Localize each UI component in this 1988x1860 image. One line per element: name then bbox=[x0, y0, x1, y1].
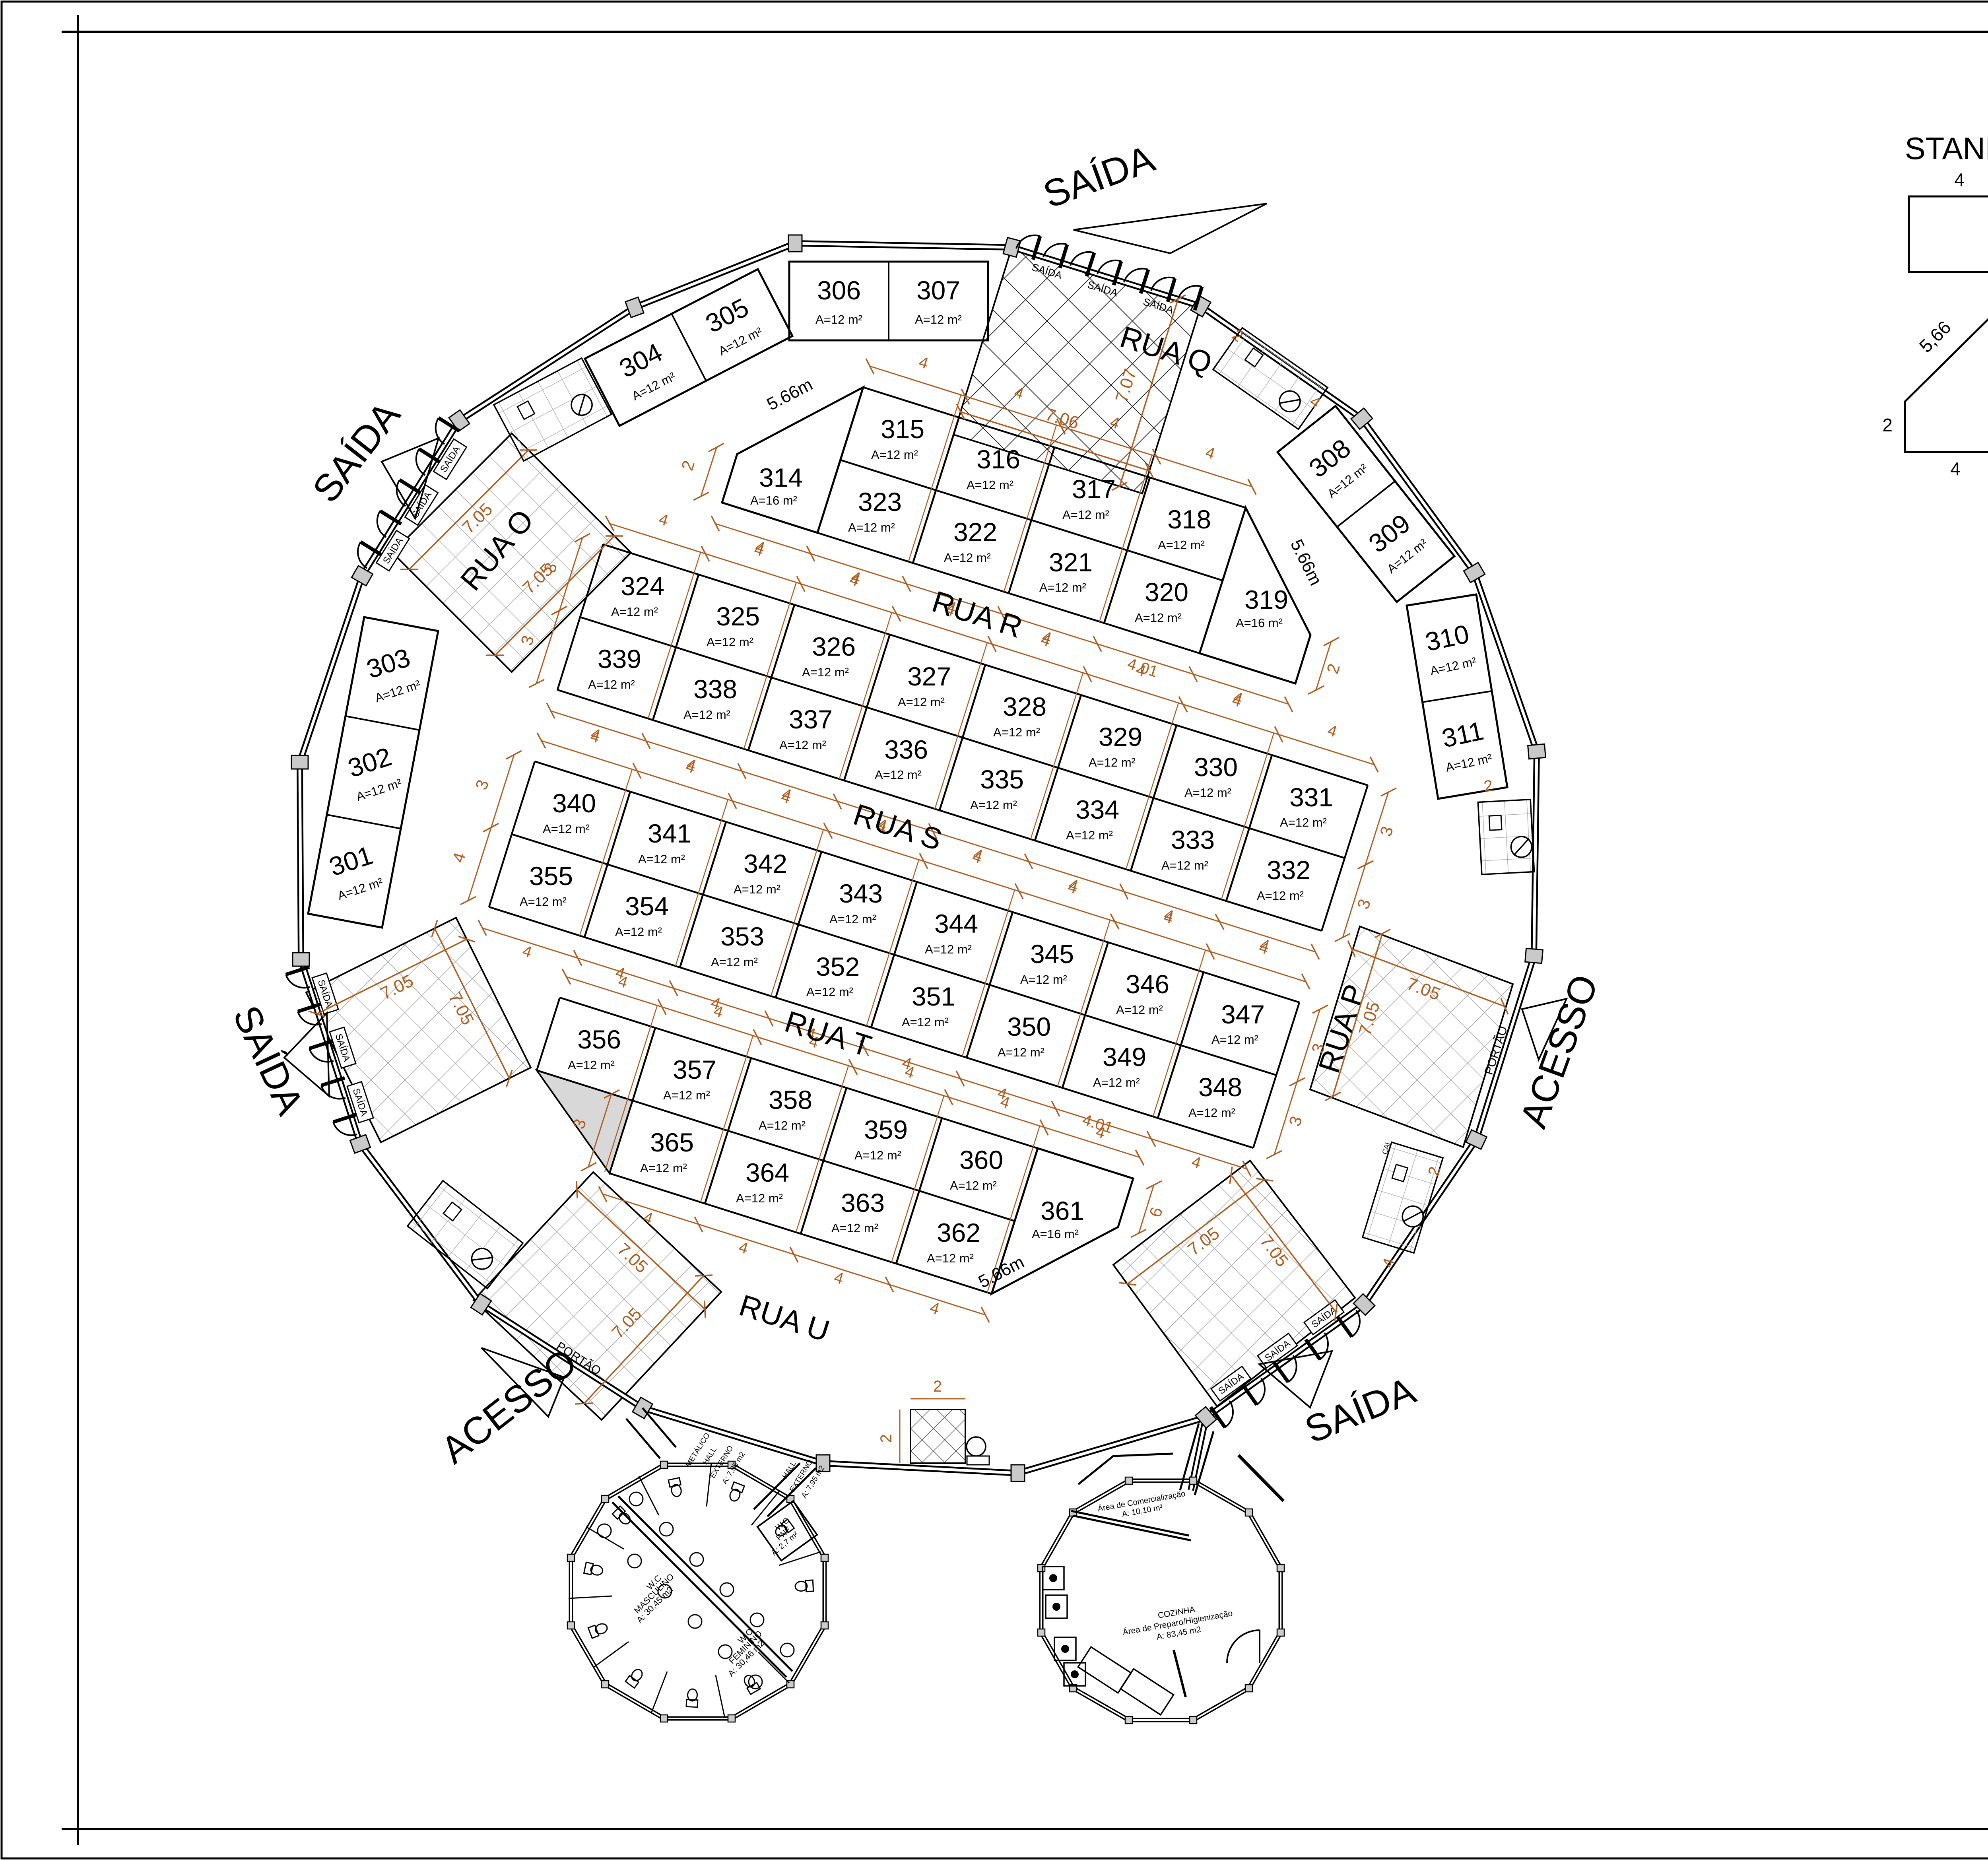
svg-text:335: 335 bbox=[980, 765, 1024, 794]
svg-text:307: 307 bbox=[916, 276, 960, 305]
svg-text:A=12 m²: A=12 m² bbox=[736, 1191, 783, 1205]
svg-text:321: 321 bbox=[1049, 548, 1093, 577]
svg-text:A=12 m²: A=12 m² bbox=[1161, 858, 1208, 872]
svg-text:A=12 m²: A=12 m² bbox=[970, 798, 1017, 812]
svg-text:A=12 m²: A=12 m² bbox=[734, 882, 780, 896]
svg-text:A=12 m²: A=12 m² bbox=[1093, 1076, 1140, 1089]
svg-text:A=12 m²: A=12 m² bbox=[663, 1088, 710, 1102]
svg-text:344: 344 bbox=[934, 909, 978, 938]
svg-text:A=12 m²: A=12 m² bbox=[683, 708, 730, 722]
svg-text:A=12 m²: A=12 m² bbox=[1280, 815, 1327, 829]
svg-text:347: 347 bbox=[1221, 1000, 1265, 1029]
svg-text:A=12 m²: A=12 m² bbox=[1116, 1003, 1163, 1017]
svg-text:A=16 m²: A=16 m² bbox=[1236, 616, 1283, 630]
svg-text:320: 320 bbox=[1145, 577, 1188, 607]
svg-text:2: 2 bbox=[933, 1378, 942, 1395]
svg-text:A=12 m²: A=12 m² bbox=[615, 925, 662, 939]
svg-text:A=12 m²: A=12 m² bbox=[831, 1221, 878, 1235]
svg-text:351: 351 bbox=[912, 982, 955, 1011]
svg-text:338: 338 bbox=[693, 674, 737, 704]
svg-text:A=12 m²: A=12 m² bbox=[520, 895, 567, 909]
svg-text:A=12 m²: A=12 m² bbox=[854, 1148, 901, 1162]
svg-text:A=12 m²: A=12 m² bbox=[759, 1118, 806, 1132]
svg-text:349: 349 bbox=[1103, 1042, 1146, 1072]
svg-text:315: 315 bbox=[881, 414, 924, 444]
svg-text:A=12 m²: A=12 m² bbox=[806, 985, 853, 999]
svg-text:A=12 m²: A=12 m² bbox=[944, 551, 991, 565]
svg-text:A=12 m²: A=12 m² bbox=[829, 912, 876, 926]
svg-text:A=12 m²: A=12 m² bbox=[1257, 889, 1304, 903]
svg-text:345: 345 bbox=[1030, 939, 1074, 969]
svg-text:333: 333 bbox=[1171, 825, 1215, 854]
svg-text:2: 2 bbox=[1882, 415, 1893, 435]
svg-text:354: 354 bbox=[625, 891, 669, 921]
svg-text:358: 358 bbox=[769, 1085, 812, 1114]
svg-text:A=12 m²: A=12 m² bbox=[815, 313, 862, 326]
svg-text:316: 316 bbox=[977, 445, 1020, 474]
svg-text:A=12 m²: A=12 m² bbox=[967, 478, 1013, 492]
svg-text:361: 361 bbox=[1041, 1196, 1084, 1225]
svg-text:A=12 m²: A=12 m² bbox=[1066, 828, 1113, 842]
svg-text:339: 339 bbox=[598, 644, 641, 674]
svg-text:360: 360 bbox=[959, 1145, 1003, 1175]
svg-text:A=12 m²: A=12 m² bbox=[1158, 538, 1205, 552]
svg-text:363: 363 bbox=[841, 1188, 885, 1217]
svg-text:325: 325 bbox=[716, 602, 760, 631]
svg-text:331: 331 bbox=[1289, 782, 1333, 812]
svg-text:306: 306 bbox=[817, 276, 861, 305]
svg-text:323: 323 bbox=[858, 487, 902, 516]
svg-text:A=12 m²: A=12 m² bbox=[993, 725, 1040, 739]
svg-text:324: 324 bbox=[621, 571, 664, 601]
svg-text:329: 329 bbox=[1099, 722, 1142, 751]
svg-text:353: 353 bbox=[720, 922, 764, 951]
svg-text:A=12 m²: A=12 m² bbox=[1184, 786, 1231, 800]
svg-text:A=12 m²: A=12 m² bbox=[875, 768, 922, 782]
svg-text:350: 350 bbox=[1007, 1012, 1051, 1041]
svg-text:STAND: STAND bbox=[1905, 131, 1988, 166]
svg-text:352: 352 bbox=[816, 952, 860, 981]
svg-text:A=12 m²: A=12 m² bbox=[638, 852, 685, 866]
svg-text:342: 342 bbox=[744, 849, 787, 878]
svg-text:346: 346 bbox=[1126, 969, 1169, 999]
svg-text:359: 359 bbox=[864, 1115, 908, 1144]
svg-text:330: 330 bbox=[1194, 752, 1238, 782]
svg-text:340: 340 bbox=[552, 788, 596, 818]
svg-text:356: 356 bbox=[577, 1025, 621, 1054]
svg-text:364: 364 bbox=[745, 1158, 789, 1187]
svg-text:365: 365 bbox=[650, 1128, 694, 1157]
svg-text:A=16 m²: A=16 m² bbox=[1032, 1227, 1079, 1241]
svg-text:A=12 m²: A=12 m² bbox=[998, 1045, 1044, 1059]
svg-text:A=12 m²: A=12 m² bbox=[902, 1015, 949, 1029]
svg-text:A=12 m²: A=12 m² bbox=[915, 313, 962, 326]
svg-text:A=12 m²: A=12 m² bbox=[898, 695, 945, 709]
svg-text:A=12 m²: A=12 m² bbox=[802, 665, 849, 679]
svg-text:A=12 m²: A=12 m² bbox=[640, 1161, 687, 1175]
svg-text:4: 4 bbox=[1954, 169, 1965, 190]
svg-text:318: 318 bbox=[1167, 505, 1211, 534]
svg-text:336: 336 bbox=[884, 735, 928, 764]
svg-text:A=12 m²: A=12 m² bbox=[1062, 508, 1109, 522]
svg-text:A=12 m²: A=12 m² bbox=[779, 738, 826, 752]
svg-text:357: 357 bbox=[673, 1055, 716, 1084]
svg-text:A=12 m²: A=12 m² bbox=[927, 1251, 974, 1265]
svg-text:A=12 m²: A=12 m² bbox=[611, 605, 658, 619]
svg-text:334: 334 bbox=[1076, 795, 1119, 824]
svg-text:A=12 m²: A=12 m² bbox=[1211, 1033, 1258, 1046]
svg-text:A=12 m²: A=12 m² bbox=[588, 678, 635, 691]
svg-text:314: 314 bbox=[759, 463, 803, 492]
svg-text:362: 362 bbox=[937, 1218, 980, 1247]
svg-text:A=12 m²: A=12 m² bbox=[871, 448, 918, 462]
svg-text:A=12 m²: A=12 m² bbox=[950, 1179, 997, 1192]
svg-text:A=12 m²: A=12 m² bbox=[1039, 581, 1086, 594]
svg-text:322: 322 bbox=[953, 517, 997, 547]
svg-text:337: 337 bbox=[789, 705, 833, 734]
svg-text:328: 328 bbox=[1003, 692, 1046, 721]
svg-text:2: 2 bbox=[878, 1434, 895, 1443]
svg-text:319: 319 bbox=[1244, 585, 1288, 614]
svg-text:A=12 m²: A=12 m² bbox=[543, 822, 590, 836]
svg-text:348: 348 bbox=[1198, 1072, 1242, 1102]
svg-text:A=12 m²: A=12 m² bbox=[925, 942, 972, 956]
svg-text:A=12 m²: A=12 m² bbox=[1135, 611, 1182, 625]
svg-text:A=12 m²: A=12 m² bbox=[1020, 973, 1067, 986]
svg-text:A=12 m²: A=12 m² bbox=[1089, 755, 1136, 769]
svg-text:326: 326 bbox=[812, 632, 856, 661]
svg-text:341: 341 bbox=[648, 819, 691, 848]
svg-text:332: 332 bbox=[1267, 855, 1310, 885]
svg-text:A=12 m²: A=12 m² bbox=[707, 635, 753, 649]
svg-text:343: 343 bbox=[839, 879, 883, 908]
svg-text:A=16 m²: A=16 m² bbox=[750, 493, 797, 507]
svg-text:A=12 m²: A=12 m² bbox=[568, 1058, 615, 1072]
svg-text:327: 327 bbox=[907, 662, 951, 691]
svg-text:A=12 m²: A=12 m² bbox=[848, 520, 895, 534]
svg-text:4: 4 bbox=[1950, 458, 1961, 479]
svg-text:355: 355 bbox=[529, 861, 573, 891]
svg-text:A=12 m²: A=12 m² bbox=[1188, 1106, 1235, 1120]
svg-text:A=12 m²: A=12 m² bbox=[711, 955, 758, 969]
svg-text:317: 317 bbox=[1072, 474, 1116, 504]
